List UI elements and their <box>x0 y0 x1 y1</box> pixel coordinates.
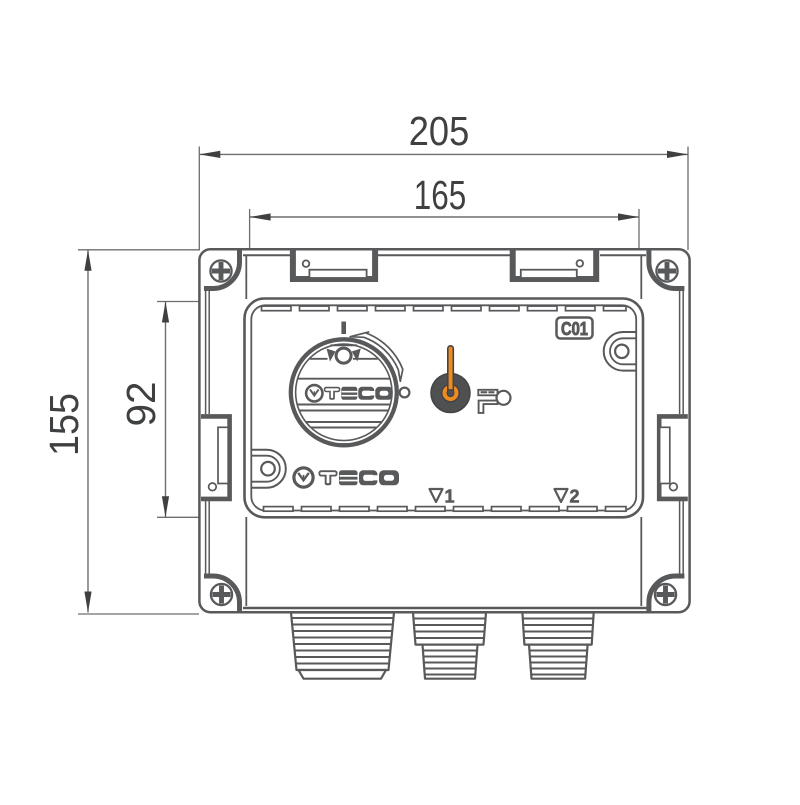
svg-text:92: 92 <box>118 382 164 427</box>
svg-text:205: 205 <box>409 108 470 154</box>
svg-text:1: 1 <box>445 487 455 507</box>
svg-text:155: 155 <box>41 393 87 456</box>
svg-text:C01: C01 <box>561 319 588 339</box>
svg-text:2: 2 <box>570 487 580 507</box>
svg-text:165: 165 <box>414 172 467 218</box>
